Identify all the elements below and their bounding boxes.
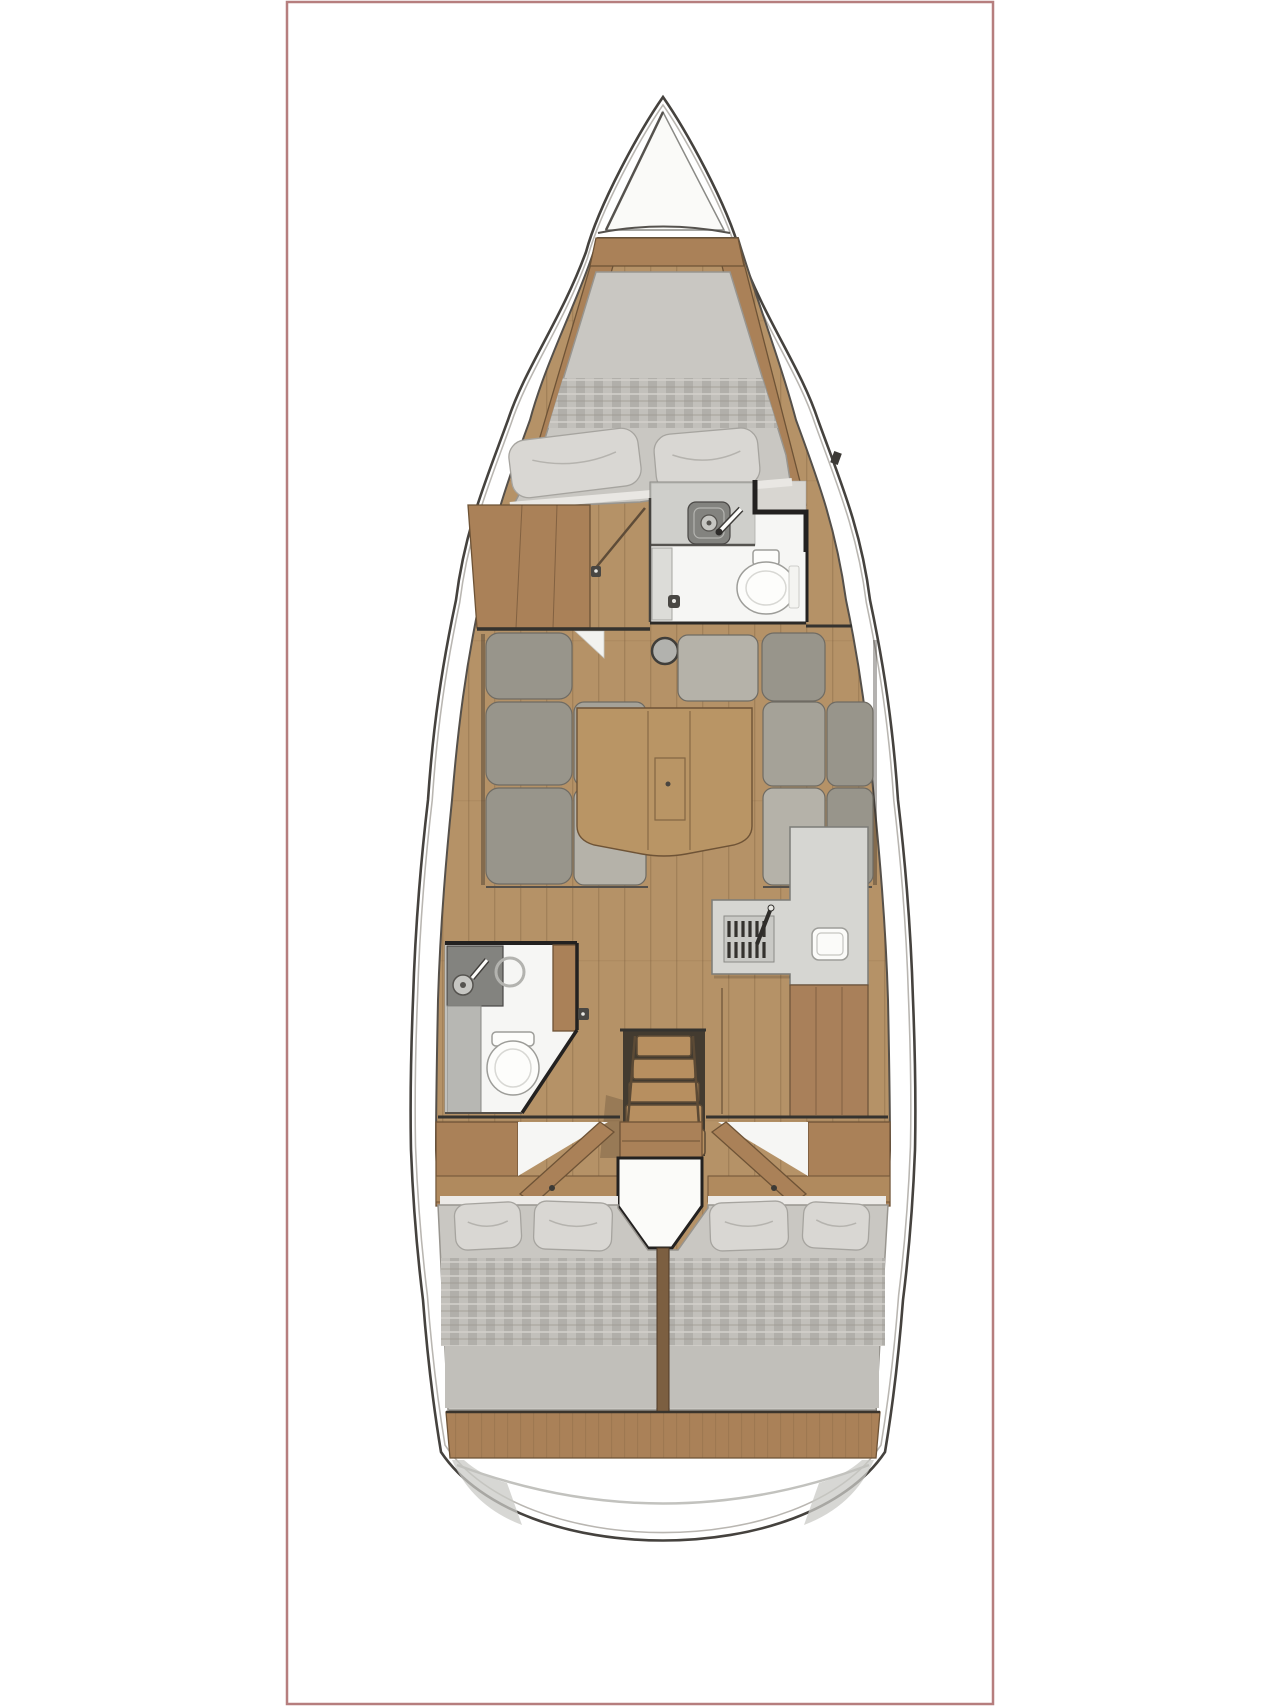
pillow: [533, 1201, 613, 1252]
bed-foot: [669, 1346, 879, 1408]
door-handle: [771, 1185, 777, 1191]
drain-dot: [460, 982, 466, 988]
mast-post: [652, 638, 678, 664]
knob-dot: [581, 1012, 585, 1016]
deck-fitting: [830, 451, 842, 465]
divider-post: [657, 1248, 669, 1434]
bed-foot: [445, 1346, 657, 1408]
salon-table: [577, 708, 752, 856]
toilet-side-panel: [789, 566, 799, 608]
v-berth-blanket-band: [548, 378, 778, 428]
drain-dot: [707, 521, 712, 526]
back-cushion: [762, 633, 825, 701]
back-cushion: [827, 702, 873, 786]
wardrobe-cabinet: [468, 505, 590, 628]
step: [629, 1082, 699, 1102]
pillow: [709, 1201, 789, 1252]
table-top: [577, 708, 752, 856]
forward-bulkhead: [590, 238, 744, 266]
head-door: [553, 945, 577, 1031]
forward-seat-cushion: [678, 635, 758, 701]
aft-cabin-port: [438, 1196, 657, 1410]
blanket-band: [669, 1258, 885, 1346]
yacht-floorplan: [0, 0, 1280, 1707]
table-center-dot: [666, 782, 671, 787]
step: [633, 1059, 695, 1079]
pillow: [802, 1201, 870, 1250]
knob-dot: [672, 599, 676, 603]
pillow: [454, 1201, 522, 1250]
step: [637, 1036, 691, 1056]
blanket-band: [441, 1258, 657, 1346]
head-door: [652, 548, 672, 620]
aft-cabin-starboard: [669, 1196, 888, 1410]
door-handle: [549, 1185, 555, 1191]
galley-lower-cabinet: [790, 985, 868, 1117]
back-cushion: [486, 702, 572, 785]
boat-floorplan-figure: [0, 0, 1280, 1707]
seat-cushion: [763, 702, 825, 786]
back-cushion: [486, 633, 572, 699]
aft-deck-grain: [446, 1412, 880, 1458]
faucet-tip: [768, 905, 774, 911]
cabinet-band: [447, 1006, 481, 1113]
faucet-base: [716, 529, 723, 536]
knob-dot: [594, 569, 598, 573]
back-cushion: [486, 788, 572, 884]
